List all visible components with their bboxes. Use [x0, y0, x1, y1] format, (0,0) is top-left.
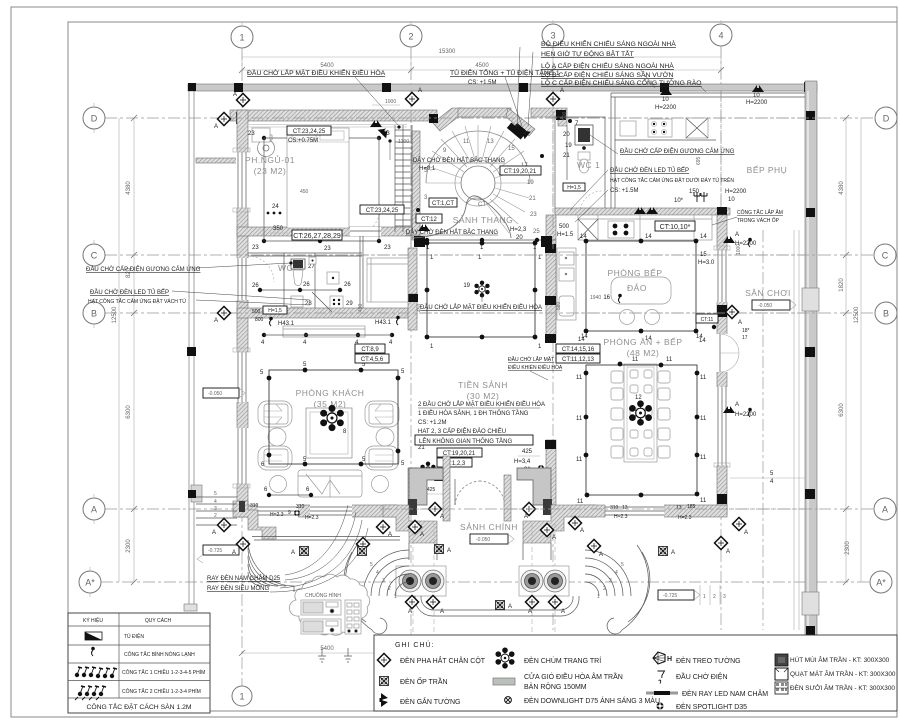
svg-text:3: 3 [550, 31, 555, 41]
svg-text:CT:26,27,28,29: CT:26,27,28,29 [293, 233, 341, 240]
svg-text:25: 25 [533, 229, 540, 235]
svg-text:310: 310 [610, 505, 619, 511]
svg-text:500: 500 [252, 309, 261, 315]
svg-text:ĐẦU CHỜ LẮP MẶT ĐIỀU KHIỂN ĐIỀ: ĐẦU CHỜ LẮP MẶT ĐIỀU KHIỂN ĐIỀU HÒA [420, 303, 542, 311]
svg-text:19: 19 [565, 143, 572, 149]
svg-text:H=2.3: H=2.3 [614, 514, 628, 520]
svg-text:A*: A* [85, 578, 95, 588]
svg-text:150: 150 [689, 189, 700, 195]
svg-text:15300: 15300 [439, 49, 456, 55]
svg-text:13: 13 [622, 505, 628, 511]
svg-text:A: A [738, 320, 742, 326]
svg-text:ĐẦU CHỜ ĐÈN LED TỦ BẾP: ĐẦU CHỜ ĐÈN LED TỦ BẾP [610, 167, 689, 174]
svg-text:A: A [561, 609, 565, 615]
svg-text:11: 11 [576, 457, 583, 463]
svg-text:B: B [91, 309, 97, 319]
svg-text:11: 11 [576, 416, 583, 422]
svg-text:CT:1,CT: CT:1,CT [432, 201, 454, 207]
svg-text:H=1.5: H=1.5 [557, 232, 574, 238]
svg-text:RAY ĐÈN SIÊU MỎNG: RAY ĐÈN SIÊU MỎNG [207, 584, 269, 592]
svg-text:SÂN CHƠI: SÂN CHƠI [745, 288, 791, 298]
svg-text:2300: 2300 [126, 539, 132, 553]
svg-text:LÊN KHÔNG GIAN THÔNG TẦNG: LÊN KHÔNG GIAN THÔNG TẦNG [419, 437, 512, 445]
svg-text:3: 3 [382, 578, 385, 584]
svg-text:500: 500 [562, 111, 568, 120]
svg-text:A: A [91, 505, 97, 515]
svg-text:A: A [528, 609, 532, 615]
svg-text:5400: 5400 [320, 646, 334, 652]
svg-text:350: 350 [273, 226, 284, 232]
svg-text:695: 695 [696, 156, 702, 165]
svg-text:13: 13 [487, 139, 494, 145]
svg-text:16: 16 [603, 295, 610, 301]
svg-text:D: D [91, 114, 98, 124]
svg-text:26: 26 [344, 282, 351, 288]
svg-text:11: 11 [577, 499, 584, 505]
svg-text:450: 450 [300, 189, 309, 195]
svg-text:10: 10 [753, 93, 760, 99]
svg-text:12500: 12500 [854, 306, 860, 323]
svg-text:1: 1 [394, 594, 397, 600]
svg-text:26: 26 [303, 282, 310, 288]
svg-text:11: 11 [576, 375, 583, 381]
svg-text:450: 450 [417, 303, 423, 312]
svg-text:A: A [214, 124, 218, 130]
svg-text:H43.1: H43.1 [278, 321, 295, 327]
svg-text:11: 11 [666, 357, 673, 363]
svg-text:4: 4 [376, 570, 379, 576]
svg-text:425: 425 [522, 449, 533, 455]
svg-text:ĐẦU CHỜ CẤP ĐIỆN GƯƠNG CẢM ỨNG: ĐẦU CHỜ CẤP ĐIỆN GƯƠNG CẢM ỨNG [86, 265, 201, 273]
svg-text:17: 17 [742, 335, 748, 341]
svg-text:TIỀN SẢNH: TIỀN SẢNH [458, 379, 508, 390]
svg-text:A: A [552, 535, 556, 541]
svg-text:14: 14 [580, 234, 587, 240]
svg-text:CT:4,5,6: CT:4,5,6 [361, 357, 384, 363]
svg-text:H=1,5: H=1,5 [567, 185, 581, 191]
svg-text:CÔNG TẮC ĐẶT CÁCH SÀN 1.2M: CÔNG TẮC ĐẶT CÁCH SÀN 1.2M [86, 702, 191, 711]
svg-text:A: A [212, 530, 216, 536]
svg-text:HẠT CÔNG TẮC CẢM ỨNG ĐẶT DƯỚI: HẠT CÔNG TẮC CẢM ỨNG ĐẶT DƯỚI ĐÁY TỦ TRÊ… [610, 176, 734, 184]
svg-text:CT:12: CT:12 [421, 217, 437, 223]
svg-text:1300: 1300 [398, 139, 409, 145]
svg-text:1000: 1000 [736, 244, 742, 255]
svg-text:H=2.3: H=2.3 [678, 515, 692, 521]
svg-text:(23 M2): (23 M2) [254, 166, 287, 176]
svg-text:CT: CT [478, 202, 486, 208]
svg-text:A: A [735, 232, 739, 238]
svg-text:26: 26 [252, 283, 259, 289]
svg-text:1940: 1940 [590, 295, 601, 301]
svg-text:SẢNH CHÍNH: SẢNH CHÍNH [460, 521, 518, 532]
svg-text:11: 11 [632, 357, 639, 363]
svg-text:A*: A* [876, 578, 886, 588]
svg-text:ĐẦU CHỜ ĐÈN LED TỦ BẾP: ĐẦU CHỜ ĐÈN LED TỦ BẾP [90, 289, 169, 296]
svg-text:(30 M2): (30 M2) [467, 391, 500, 401]
svg-text:PHÒNG KHÁCH: PHÒNG KHÁCH [296, 388, 365, 398]
svg-text:19: 19 [527, 180, 534, 186]
svg-text:PH.NGỦ-01: PH.NGỦ-01 [245, 154, 295, 165]
svg-text:5: 5 [370, 562, 373, 568]
svg-text:CS: +1.5M: CS: +1.5M [610, 188, 639, 194]
svg-text:2: 2 [214, 513, 217, 519]
svg-text:14: 14 [696, 334, 703, 340]
svg-text:11: 11 [463, 139, 470, 145]
svg-text:H=2200: H=2200 [655, 105, 677, 111]
svg-text:580: 580 [556, 301, 562, 310]
svg-text:425: 425 [427, 487, 436, 493]
svg-text:A: A [735, 402, 739, 408]
svg-text:PHÒNG BẾP: PHÒNG BẾP [607, 268, 662, 278]
svg-text:A: A [671, 550, 675, 556]
svg-text:A: A [726, 549, 730, 555]
svg-text:23: 23 [248, 131, 255, 137]
svg-text:H=2200: H=2200 [735, 412, 757, 418]
svg-text:BẢN RỘNG 150MM: BẢN RỘNG 150MM [524, 682, 587, 691]
svg-text:23: 23 [384, 245, 391, 251]
svg-text:CS: +1.5M: CS: +1.5M [468, 80, 497, 86]
svg-text:A: A [418, 88, 422, 94]
svg-text:HẸN GIỜ TỰ ĐỘNG BẬT TẮT: HẸN GIỜ TỰ ĐỘNG BẬT TẮT [541, 49, 634, 58]
svg-text:15: 15 [700, 252, 707, 258]
svg-text:14: 14 [645, 234, 652, 240]
svg-text:D: D [883, 114, 890, 124]
svg-text:CT:11: CT:11 [701, 317, 714, 323]
svg-text:24: 24 [272, 204, 279, 210]
svg-text:A: A [524, 514, 528, 520]
svg-text:ĐÈN SPOTLIGHT D35: ĐÈN SPOTLIGHT D35 [676, 702, 747, 711]
svg-text:A: A [233, 92, 237, 98]
svg-text:ĐÈN DOWNLIGHT D75 ÁNH SÁNG 3 M: ĐÈN DOWNLIGHT D75 ÁNH SÁNG 3 MÀU [524, 696, 660, 705]
svg-text:ĐÈN PHA HẮT CHÂN CỘT: ĐÈN PHA HẮT CHÂN CỘT [400, 656, 486, 665]
svg-text:CT:11,12,13: CT:11,12,13 [562, 357, 595, 363]
svg-text:4: 4 [214, 499, 217, 505]
svg-text:800: 800 [255, 317, 264, 323]
svg-text:TỦ ĐIỆN: TỦ ĐIỆN [124, 632, 144, 640]
svg-text:A: A [447, 548, 451, 554]
svg-text:1: 1 [239, 692, 244, 702]
svg-text:4: 4 [718, 31, 723, 41]
svg-text:11: 11 [700, 375, 707, 381]
svg-text:CT:23,24,25: CT:23,24,25 [366, 208, 399, 214]
svg-text:A: A [232, 550, 236, 556]
svg-text:-0.050: -0.050 [758, 303, 772, 309]
svg-text:490: 490 [358, 303, 364, 312]
svg-text:500: 500 [559, 224, 570, 230]
svg-text:H=3.0: H=3.0 [698, 260, 715, 266]
svg-text:CHUÔNG HÌNH: CHUÔNG HÌNH [305, 592, 341, 599]
svg-text:20: 20 [563, 132, 570, 138]
svg-text:H=0,1: H=0,1 [419, 166, 436, 172]
svg-text:5: 5 [214, 491, 217, 497]
svg-text:H=2200: H=2200 [725, 189, 747, 195]
svg-text:CT:19,20,21: CT:19,20,21 [504, 169, 537, 175]
svg-text:A: A [599, 552, 603, 558]
svg-text:10: 10 [728, 197, 735, 203]
svg-text:PHÒNG ĂN + BẾP: PHÒNG ĂN + BẾP [603, 337, 682, 347]
svg-text:-0.050: -0.050 [476, 537, 490, 543]
svg-text:5: 5 [621, 562, 624, 568]
svg-text:A: A [420, 532, 424, 538]
svg-text:23: 23 [530, 212, 537, 218]
svg-text:ĐÈN TREO TƯỜNG: ĐÈN TREO TƯỜNG [676, 656, 741, 665]
svg-text:12: 12 [635, 395, 642, 401]
svg-text:WC 1: WC 1 [577, 160, 600, 170]
svg-text:11: 11 [700, 416, 707, 422]
svg-text:19: 19 [463, 283, 470, 289]
svg-text:27: 27 [308, 264, 315, 270]
svg-text:10*: 10* [674, 198, 684, 204]
svg-text:CÔNG TẮC 1 CHIỀU 1-2-3-4-5 PHÍ: CÔNG TẮC 1 CHIỀU 1-2-3-4-5 PHÍM [122, 668, 205, 676]
svg-text:6300: 6300 [839, 403, 845, 417]
svg-text:9: 9 [288, 510, 291, 516]
svg-text:A: A [508, 604, 512, 610]
svg-text:1: 1 [239, 33, 244, 43]
svg-text:HẠT CÔNG TẮC CẢM ỨNG ĐẶT VÁCH: HẠT CÔNG TẮC CẢM ỨNG ĐẶT VÁCH TỦ [88, 297, 186, 305]
svg-text:1: 1 [597, 594, 600, 600]
svg-text:H=1,5: H=1,5 [268, 308, 282, 314]
svg-text:23: 23 [324, 246, 331, 252]
svg-text:A: A [214, 318, 218, 324]
svg-text:4500: 4500 [475, 63, 489, 69]
svg-text:C: C [882, 251, 889, 261]
svg-text:GHI CHÚ:: GHI CHÚ: [395, 640, 435, 649]
svg-text:1 ĐIỀU HÒA SẢNH, 1 ĐH THÔNG TẦ: 1 ĐIỀU HÒA SẢNH, 1 ĐH THÔNG TẦNG [418, 410, 529, 417]
svg-text:H=2.3: H=2.3 [305, 515, 319, 521]
svg-text:28: 28 [305, 301, 312, 307]
svg-text:H=2200: H=2200 [746, 100, 768, 106]
svg-text:CT:8,9: CT:8,9 [361, 347, 379, 353]
svg-text:CT:10,10*: CT:10,10* [660, 224, 691, 231]
svg-text:RAY ĐÈN NAM CHÂM D25: RAY ĐÈN NAM CHÂM D25 [207, 575, 281, 582]
svg-text:ĐẢO: ĐẢO [627, 282, 647, 293]
svg-text:ĐÈN GẮN TƯỜNG: ĐÈN GẮN TƯỜNG [400, 697, 460, 706]
svg-text:H=3,4: H=3,4 [514, 459, 531, 465]
svg-text:2: 2 [713, 594, 716, 600]
svg-text:1820: 1820 [839, 278, 845, 292]
svg-text:11: 11 [700, 455, 707, 461]
svg-text:5400: 5400 [320, 63, 334, 69]
svg-text:2300: 2300 [845, 541, 851, 555]
svg-text:21: 21 [418, 445, 425, 451]
svg-text:TRONG VÁCH ỐP: TRONG VÁCH ỐP [737, 217, 780, 224]
svg-text:A: A [744, 530, 748, 536]
svg-text:CÔNG TẮC LẮP ÂM: CÔNG TẮC LẮP ÂM [737, 208, 783, 216]
svg-text:2: 2 [408, 32, 413, 42]
svg-text:3: 3 [723, 594, 726, 600]
svg-text:15: 15 [508, 146, 515, 152]
svg-text:CS:+0.75M: CS:+0.75M [288, 138, 318, 144]
svg-text:CT:14,15,16: CT:14,15,16 [562, 347, 595, 353]
svg-text:11: 11 [700, 498, 707, 504]
svg-text:2 ĐẦU CHỜ LẮP MẶT ĐIỀU KHIỂN Đ: 2 ĐẦU CHỜ LẮP MẶT ĐIỀU KHIỂN ĐIỀU HÒA [418, 400, 545, 408]
svg-text:ĐÈN RAY LED NAM CHÂM: ĐÈN RAY LED NAM CHÂM [682, 689, 768, 698]
svg-text:CS: +1.2M: CS: +1.2M [418, 420, 447, 426]
svg-text:-0.725: -0.725 [663, 593, 677, 599]
svg-text:6300: 6300 [126, 405, 132, 419]
svg-text:1: 1 [703, 594, 706, 600]
svg-text:ĐÈN CHÙM TRANG TRÍ: ĐÈN CHÙM TRANG TRÍ [524, 656, 601, 665]
svg-text:310: 310 [250, 503, 259, 509]
svg-text:QUY CÁCH: QUY CÁCH [145, 617, 172, 624]
svg-text:A: A [408, 609, 412, 615]
svg-text:KÝ HIỆU: KÝ HIỆU [83, 616, 103, 624]
svg-text:-0.725: -0.725 [208, 548, 222, 554]
svg-text:B: B [883, 309, 889, 319]
svg-text:4: 4 [615, 570, 618, 576]
svg-text:H=2,3: H=2,3 [510, 227, 527, 233]
svg-text:20: 20 [516, 235, 523, 241]
svg-text:HAT 2, 3 CẤP ĐIỆN ĐẢO CHIỀU: HAT 2, 3 CẤP ĐIỆN ĐẢO CHIỀU [418, 427, 506, 435]
svg-text:23: 23 [252, 245, 259, 251]
svg-text:ĐIỀU KHIỂN ĐIỀU HÒA: ĐIỀU KHIỂN ĐIỀU HÒA [508, 364, 563, 371]
svg-text:3: 3 [609, 578, 612, 584]
svg-text:SẢNH THANG: SẢNH THANG [453, 214, 514, 225]
svg-text:13: 13 [676, 505, 682, 511]
svg-text:A: A [882, 505, 888, 515]
svg-text:H: H [667, 656, 672, 663]
svg-text:14: 14 [581, 334, 588, 340]
svg-text:2: 2 [603, 586, 606, 592]
svg-text:H=2.3: H=2.3 [270, 512, 284, 518]
svg-text:10: 10 [662, 97, 669, 103]
svg-text:CT:23,24,25: CT:23,24,25 [293, 129, 326, 135]
svg-text:29: 29 [346, 301, 353, 307]
svg-text:A: A [440, 609, 444, 615]
svg-text:ĐẦU CHỜ CẤP ĐIỆN GƯƠNG CẢM ỨNG: ĐẦU CHỜ CẤP ĐIỆN GƯƠNG CẢM ỨNG [620, 147, 735, 155]
svg-text:21: 21 [563, 153, 570, 159]
svg-text:BẾP PHỤ: BẾP PHỤ [747, 165, 788, 175]
svg-text:4380: 4380 [839, 181, 845, 195]
svg-text:H43.1: H43.1 [375, 320, 392, 326]
svg-text:A: A [388, 532, 392, 538]
svg-text:CÔNG TẮC BÌNH NÓNG LẠNH: CÔNG TẮC BÌNH NÓNG LẠNH [124, 650, 195, 658]
svg-text:3: 3 [214, 506, 217, 512]
svg-text:1000: 1000 [385, 99, 396, 105]
svg-text:A: A [440, 514, 444, 520]
svg-text:A: A [580, 528, 584, 534]
svg-text:2: 2 [388, 586, 391, 592]
svg-text:14: 14 [700, 234, 707, 240]
svg-text:310: 310 [296, 504, 305, 510]
svg-text:21: 21 [529, 196, 536, 202]
svg-text:-0.050: -0.050 [208, 391, 222, 397]
svg-text:C: C [91, 251, 98, 261]
svg-text:A: A [560, 88, 564, 94]
svg-text:ĐẦU CHỜ LẮP MẶT: ĐẦU CHỜ LẮP MẶT [508, 355, 554, 363]
svg-text:CÔNG TẮC 2 CHIỀU 1-2-3-4 PHÍM: CÔNG TẮC 2 CHIỀU 1-2-3-4 PHÍM [122, 687, 201, 695]
svg-text:A: A [291, 550, 295, 556]
svg-text:12500: 12500 [112, 306, 118, 323]
svg-text:18*: 18* [742, 328, 750, 334]
svg-text:4380: 4380 [126, 181, 132, 195]
